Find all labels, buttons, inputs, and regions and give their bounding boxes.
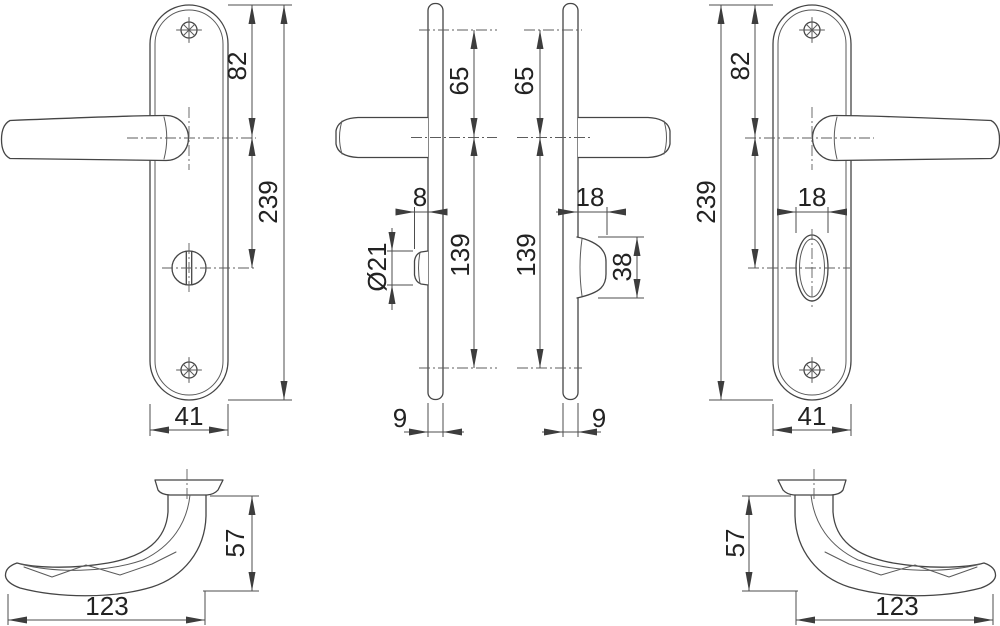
door-handle-technical-drawing: 82 239 41	[0, 0, 1000, 626]
handle-rose-collar-right	[778, 480, 846, 495]
view-handle-profile-left: 57 123	[5, 469, 259, 625]
dimensions-profile-right	[742, 496, 993, 625]
dim-label-diameter-21: Ø21	[362, 242, 392, 291]
dim-label-57-left: 57	[220, 529, 250, 558]
thumbturn-side-small	[415, 251, 429, 285]
lever-side-profile-mirror	[578, 118, 670, 158]
dim-label-9-left: 9	[393, 403, 407, 433]
view-front-left: 82 239 41	[2, 5, 293, 436]
dim-label-18-front: 18	[798, 182, 827, 212]
dim-label-139-right: 139	[511, 233, 541, 276]
dim-label-57-right: 57	[720, 529, 750, 558]
handle-inner-curve-right	[811, 495, 981, 570]
view-handle-profile-right: 57 123	[720, 469, 996, 625]
dim-label-82-right: 82	[725, 52, 755, 81]
dim-label-65-right: 65	[509, 67, 539, 96]
dim-label-123-left: 123	[85, 591, 128, 621]
view-side-left: 65 8 Ø21 139 9	[336, 4, 497, 438]
dimensions-profile-left	[8, 496, 259, 625]
dim-label-123-right: 123	[875, 591, 918, 621]
dim-label-239-right: 239	[691, 180, 721, 223]
handle-profile-outline-right	[795, 495, 996, 596]
view-front-right: 82 239 18 41	[691, 5, 1000, 436]
dim-label-239-left: 239	[253, 180, 283, 223]
technical-drawing-canvas: 82 239 41	[0, 0, 1000, 626]
dim-label-8: 8	[413, 182, 427, 212]
dim-label-18-side: 18	[576, 182, 605, 212]
view-side-right: 65 18 38 139 9	[509, 4, 670, 438]
dim-label-41-left: 41	[175, 401, 204, 431]
dim-label-82-left: 82	[222, 52, 252, 81]
dim-label-41-right: 41	[798, 401, 827, 431]
handle-profile-outline-left	[5, 495, 206, 596]
dimensions-side-right	[540, 30, 644, 437]
backplate-side-profile	[428, 4, 443, 400]
handle-rose-collar-left	[155, 480, 223, 495]
backplate-outer	[150, 5, 228, 400]
dim-label-65-left: 65	[444, 67, 474, 96]
dim-label-139-left: 139	[445, 233, 475, 276]
dim-label-9-right: 9	[592, 403, 606, 433]
dim-label-38: 38	[607, 253, 637, 282]
handle-inner-curve-left	[20, 495, 190, 570]
